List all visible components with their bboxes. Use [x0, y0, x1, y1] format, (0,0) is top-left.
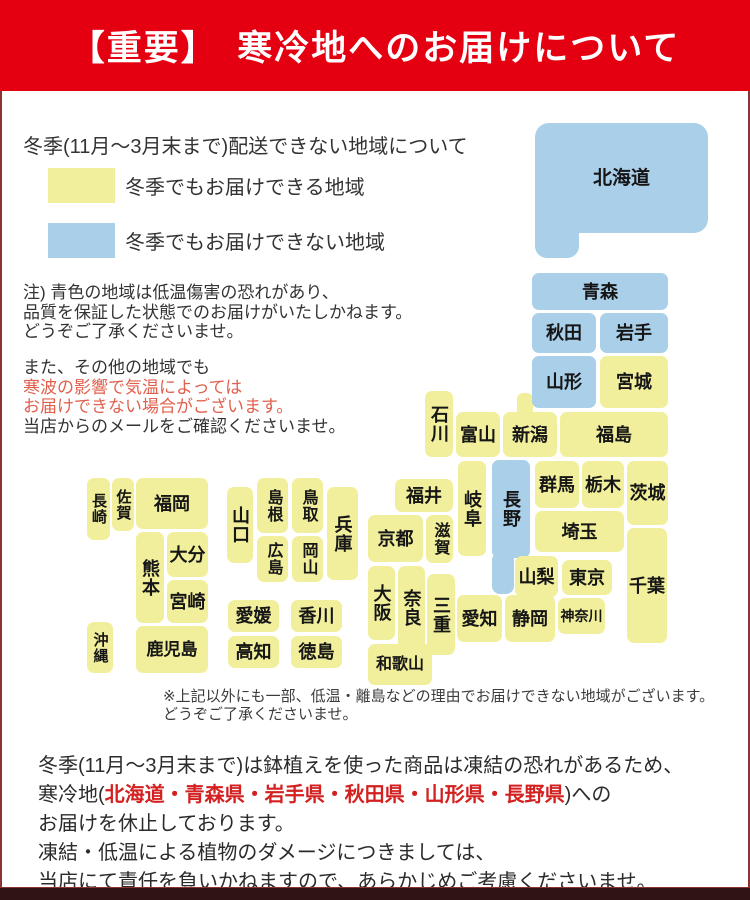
footer-line: お届けを休止しております。 — [38, 810, 683, 839]
footer-text-segment: 寒冷地( — [38, 784, 105, 806]
map-block-kumamoto: 熊本 — [136, 532, 164, 623]
map-block-iwate: 岩手 — [600, 313, 668, 353]
map-block-mie: 三重 — [427, 574, 455, 655]
map-block-fukui: 福井 — [395, 479, 453, 512]
map-block-shiga: 滋賀 — [426, 515, 453, 563]
map-block-yamagata: 山形 — [532, 356, 596, 408]
map-block-nagano: 長野 — [492, 460, 530, 558]
map-block-saitama: 埼玉 — [535, 511, 624, 552]
footer-text-segment: お届けを休止しております。 — [38, 813, 295, 835]
map-block-gifu: 岐阜 — [458, 461, 486, 556]
map-block-kanagawa: 神奈川 — [558, 598, 605, 634]
map-block-yamaguchi: 山口 — [227, 487, 253, 563]
map-block-nara: 奈良 — [398, 566, 425, 650]
footer-text-segment: 凍結・低温による植物のダメージにつきましては、 — [38, 842, 495, 864]
map-block-shizuoka: 静岡 — [505, 595, 555, 642]
footer-line: 寒冷地(北海道・青森県・岩手県・秋田県・山形県・長野県)への — [38, 781, 683, 810]
map-block-tottori: 鳥取 — [292, 478, 323, 533]
footer-line: 冬季(11月～3月末まで)は鉢植えを使った商品は凍結の恐れがあるため、 — [38, 752, 683, 781]
japan-prefecture-map: 北海道青森秋田岩手宮城新潟福島石川富山福井岐阜長野群馬栃木茨城埼玉千葉山梨東京神… — [0, 0, 750, 750]
map-block-saga: 佐賀 — [112, 478, 134, 531]
map-block-aichi: 愛知 — [457, 595, 502, 642]
map-block-hyogo: 兵庫 — [327, 487, 358, 580]
suspension-notice: 冬季(11月～3月末まで)は鉢植えを使った商品は凍結の恐れがあるため、寒冷地(北… — [38, 752, 683, 897]
map-footnote: ※上記以外にも一部、低温・離島などの理由でお届けできない地域がございます。どうぞ… — [163, 688, 714, 724]
map-block-ehime: 愛媛 — [228, 600, 279, 632]
map-block-kagoshima: 鹿児島 — [136, 626, 208, 673]
map-block-kyoto: 京都 — [368, 515, 423, 562]
map-block-nagasaki: 長崎 — [87, 478, 110, 540]
map-block-akita: 秋田 — [532, 313, 596, 353]
map-block-kochi: 高知 — [228, 636, 279, 668]
map-block-gunma: 群馬 — [535, 461, 579, 508]
map-block-oita: 大分 — [167, 532, 208, 577]
footer-text-segment: )への — [565, 784, 612, 806]
map-block-okayama: 岡山 — [292, 536, 323, 582]
map-block-tokushima: 徳島 — [291, 636, 342, 668]
map-block-ishikawa: 石川 — [425, 391, 453, 457]
map-block-yamanashi: 山梨 — [515, 556, 558, 597]
footnote-line: ※上記以外にも一部、低温・離島などの理由でお届けできない地域がございます。 — [163, 688, 714, 706]
map-block-hokkaido: 北海道 — [535, 123, 708, 233]
cold-region-shipping-notice: 【重要】 寒冷地へのお届けについて 冬季(11月～3月末まで)配送できない地域に… — [0, 0, 750, 900]
map-block-ibaraki: 茨城 — [627, 461, 668, 525]
map-block-kagawa: 香川 — [291, 600, 342, 632]
bottom-border-bar — [0, 887, 750, 900]
map-block-okinawa: 沖縄 — [87, 622, 113, 673]
map-block-osaka: 大阪 — [368, 566, 395, 640]
map-block-shimane: 島根 — [257, 478, 288, 533]
map-block-wakayama: 和歌山 — [368, 644, 432, 685]
map-block-nagano-extension — [492, 552, 514, 594]
cold-region-prefecture-list: 北海道・青森県・岩手県・秋田県・山形県・長野県 — [105, 784, 565, 806]
map-block-tochigi: 栃木 — [582, 461, 624, 508]
footnote-line: どうぞご了承くださいませ。 — [163, 706, 714, 724]
map-block-tokyo: 東京 — [562, 560, 612, 595]
footer-line: 凍結・低温による植物のダメージにつきましては、 — [38, 839, 683, 868]
map-block-fukushima: 福島 — [560, 412, 668, 457]
map-block-chiba: 千葉 — [627, 528, 667, 643]
map-block-hiroshima: 広島 — [257, 536, 288, 582]
map-block-miyazaki: 宮崎 — [167, 580, 208, 623]
map-block-toyama: 富山 — [456, 412, 500, 457]
map-block-aomori: 青森 — [532, 273, 668, 310]
footer-text-segment: 冬季(11月～3月末まで)は鉢植えを使った商品は凍結の恐れがあるため、 — [38, 755, 683, 777]
map-block-fukuoka: 福岡 — [136, 478, 208, 529]
map-block-niigata: 新潟 — [503, 412, 557, 457]
map-block-miyagi: 宮城 — [600, 356, 668, 408]
